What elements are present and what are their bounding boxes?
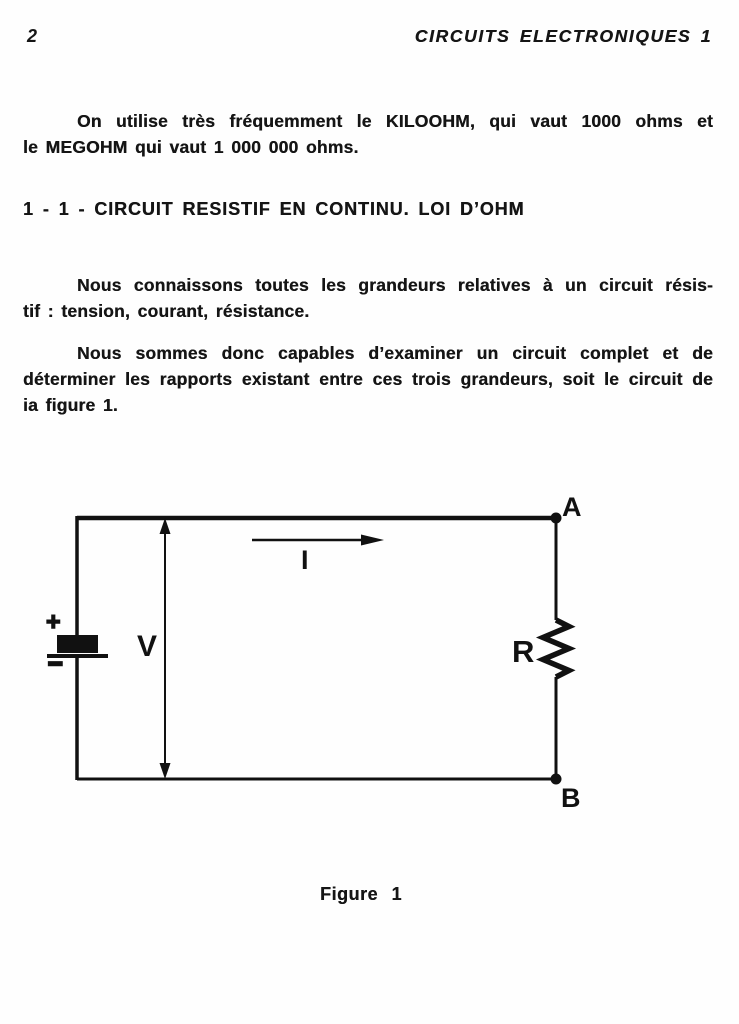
book-page: 2 CIRCUITS ELECTRONIQUES 1 On utilise tr… xyxy=(0,0,739,1024)
section-heading: 1 - 1 - CIRCUIT RESISTIF EN CONTINU. LOI… xyxy=(23,199,524,220)
intro-paragraph-line-2: le MEGOHM qui vaut 1 000 000 ohms. xyxy=(23,134,713,160)
paragraph-circuit-line-1: Nous sommes donc capables d’examiner un … xyxy=(23,340,713,366)
paragraph-circuit-line-2: déterminer les rapports existant entre c… xyxy=(23,366,713,392)
node-b-dot xyxy=(551,774,562,785)
paragraph-circuit: Nous sommes donc capables d’examiner un … xyxy=(23,340,713,418)
battery-minus-sign: − xyxy=(48,650,63,678)
running-header: 2 CIRCUITS ELECTRONIQUES 1 xyxy=(27,26,712,47)
node-a-dot xyxy=(551,513,562,524)
battery-thick-plate xyxy=(57,635,98,653)
voltage-arrowhead-up xyxy=(160,518,171,534)
voltage-arrowhead-down xyxy=(160,763,171,779)
intro-paragraph: On utilise très fréquemment le KILOOHM, … xyxy=(23,108,713,160)
paragraph-grandeurs: Nous connaissons toutes les grandeurs re… xyxy=(23,272,713,324)
running-title: CIRCUITS ELECTRONIQUES 1 xyxy=(415,26,712,47)
voltage-label: V xyxy=(137,630,157,663)
paragraph-grandeurs-line-1: Nous connaissons toutes les grandeurs re… xyxy=(23,272,713,298)
paragraph-grandeurs-line-2: tif : tension, courant, résistance. xyxy=(23,298,713,324)
current-label: I xyxy=(301,545,309,575)
node-a-label: A xyxy=(562,492,582,522)
current-arrowhead xyxy=(361,535,384,546)
intro-paragraph-line-1: On utilise très fréquemment le KILOOHM, … xyxy=(23,108,713,134)
resistor-label: R xyxy=(512,634,534,669)
battery-thin-plate xyxy=(47,654,108,658)
paragraph-circuit-line-3: ia figure 1. xyxy=(23,392,713,418)
battery-plus-sign: + xyxy=(46,608,61,636)
resistor-zigzag xyxy=(543,620,569,677)
page-number: 2 xyxy=(27,26,37,47)
figure-caption: Figure 1 xyxy=(0,884,722,905)
node-b-label: B xyxy=(561,783,581,813)
